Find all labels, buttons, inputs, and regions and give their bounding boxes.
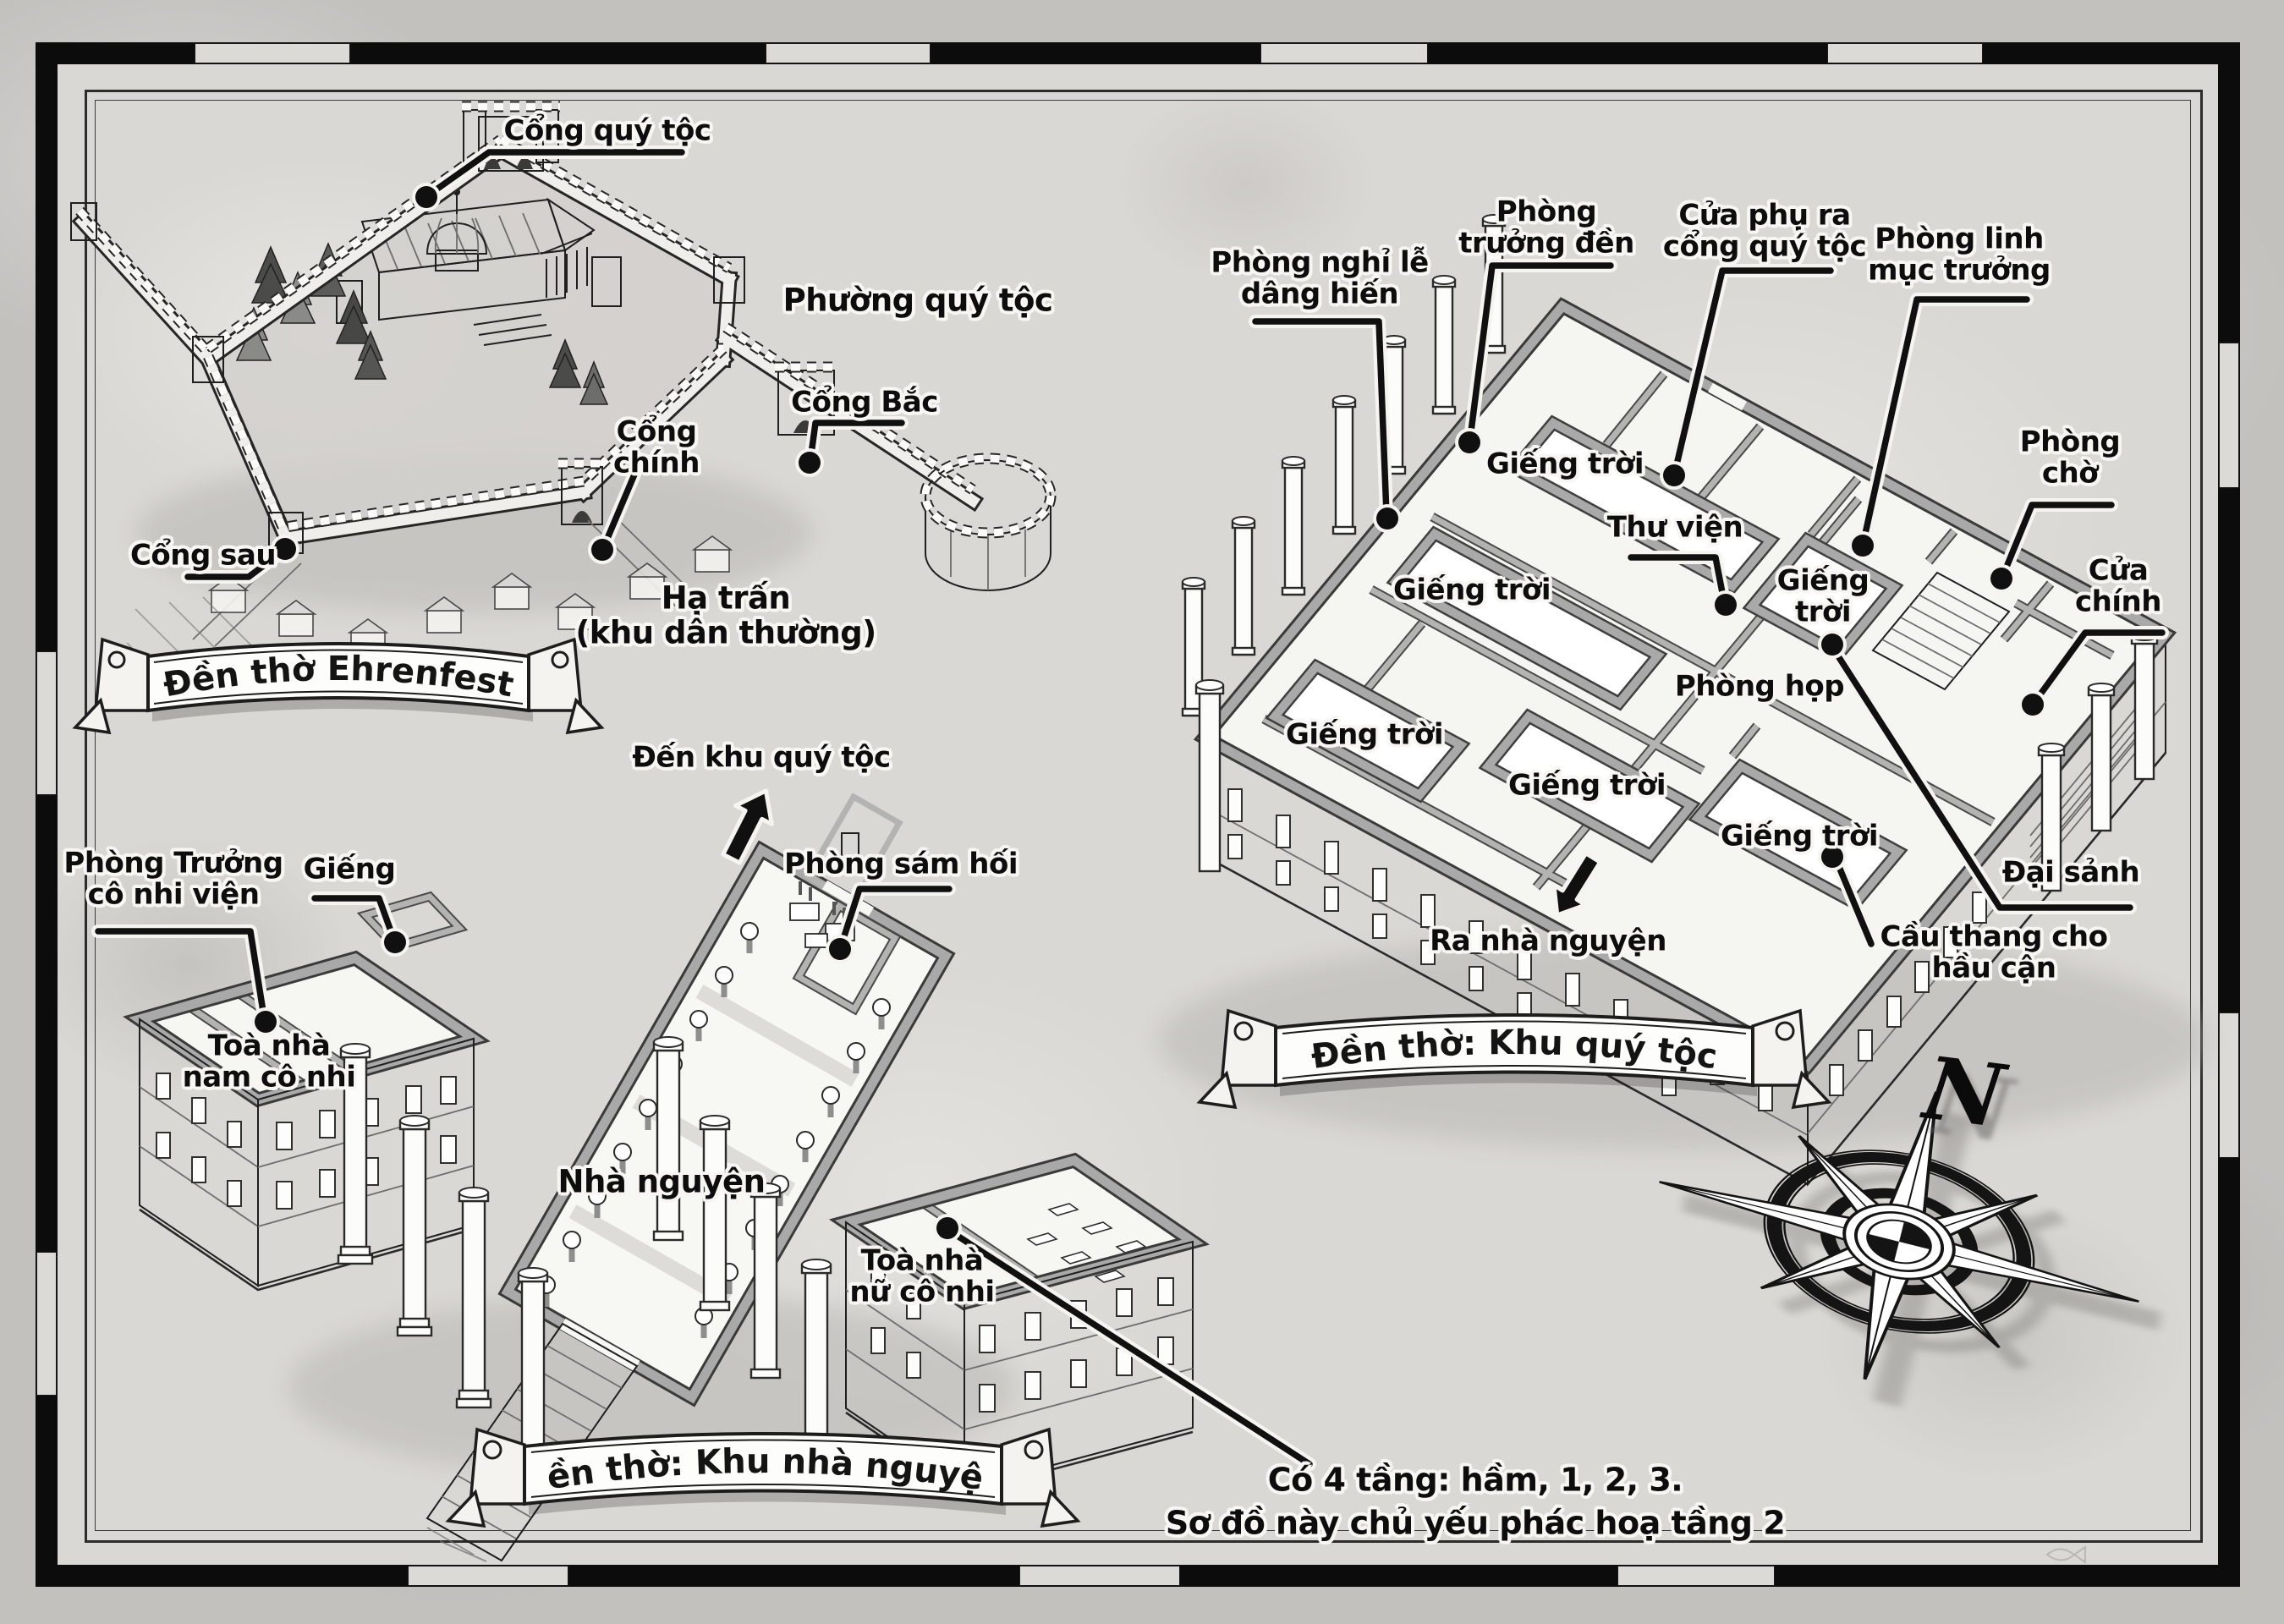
label-cau-thang: Cầu thang cho hầu cận <box>1849 922 2139 985</box>
label-gieng-troi-stacked: Giếng trời <box>1777 566 1869 629</box>
label-cua-chinh: Cửa chính <box>2075 556 2161 619</box>
label-phuong-quy-toc: Phường quý tộc <box>783 284 1053 319</box>
label-phong-hop: Phòng họp <box>1675 671 1844 702</box>
fish-watermark-doodle <box>2047 1547 2085 1562</box>
label-cong-bac: Cổng Bắc <box>791 387 938 418</box>
label-gieng-troi-1: Giếng trời <box>1486 448 1644 480</box>
label-gieng-troi-4: Giếng trời <box>1508 770 1666 801</box>
label-cong-quy-toc: Cổng quý tộc <box>504 115 711 146</box>
label-phong-truong-co-nhi: Phòng Trưởng cô nhi viện <box>63 848 283 912</box>
label-cong-sau: Cổng sau <box>130 540 276 571</box>
label-gieng-troi-2: Giếng trời <box>1393 574 1551 606</box>
banner-ehrenfest: Đền thờ Ehrenfest <box>75 639 601 732</box>
compass-north-letter: N <box>1920 1045 2009 1141</box>
label-gieng: Giếng <box>304 853 396 885</box>
label-gieng-troi-3: Giếng trời <box>1286 719 1443 750</box>
label-ra-nha-nguyen: Ra nhà nguyện <box>1430 925 1666 957</box>
label-toa-nu: Toà nhà nữ cô nhi <box>849 1246 994 1309</box>
banner-chapel: Đền thờ: Khu nhà nguyện <box>448 1429 1078 1526</box>
label-gieng-troi-5: Giếng trời <box>1721 820 1878 852</box>
label-phong-truong-den: Phòng trưởng đền <box>1458 197 1634 261</box>
label-cong-chinh: Cổng chính <box>613 417 700 480</box>
label-toa-nam: Toà nhà nam cô nhi <box>183 1031 356 1095</box>
label-den-khu-quy-toc: Đến khu quý tộc <box>632 742 890 773</box>
label-phong-sam-hoi: Phòng sám hối <box>784 848 1018 880</box>
map-page: { "map": { "region_labels": { "phuong_qu… <box>0 0 2284 1624</box>
floors-note: Có 4 tầng: hầm, 1, 2, 3. Sơ đồ này chủ y… <box>1166 1459 1785 1546</box>
label-phong-linh-muc: Phòng linh mục trưởng <box>1868 224 2051 288</box>
label-nha-nguyen: Nhà nguyện <box>558 1166 766 1200</box>
label-ha-tran: Hạ trấn (khu dân thường) <box>575 581 876 650</box>
label-phong-cho: Phòng chờ <box>2020 427 2121 491</box>
label-dai-sanh: Đại sảnh <box>2002 857 2140 888</box>
label-cua-phu: Cửa phụ ra cổng quý tộc <box>1663 200 1866 264</box>
label-phong-nghi-le: Phòng nghỉ lễ dâng hiến <box>1211 248 1428 311</box>
label-thu-vien: Thư viện <box>1607 512 1743 543</box>
